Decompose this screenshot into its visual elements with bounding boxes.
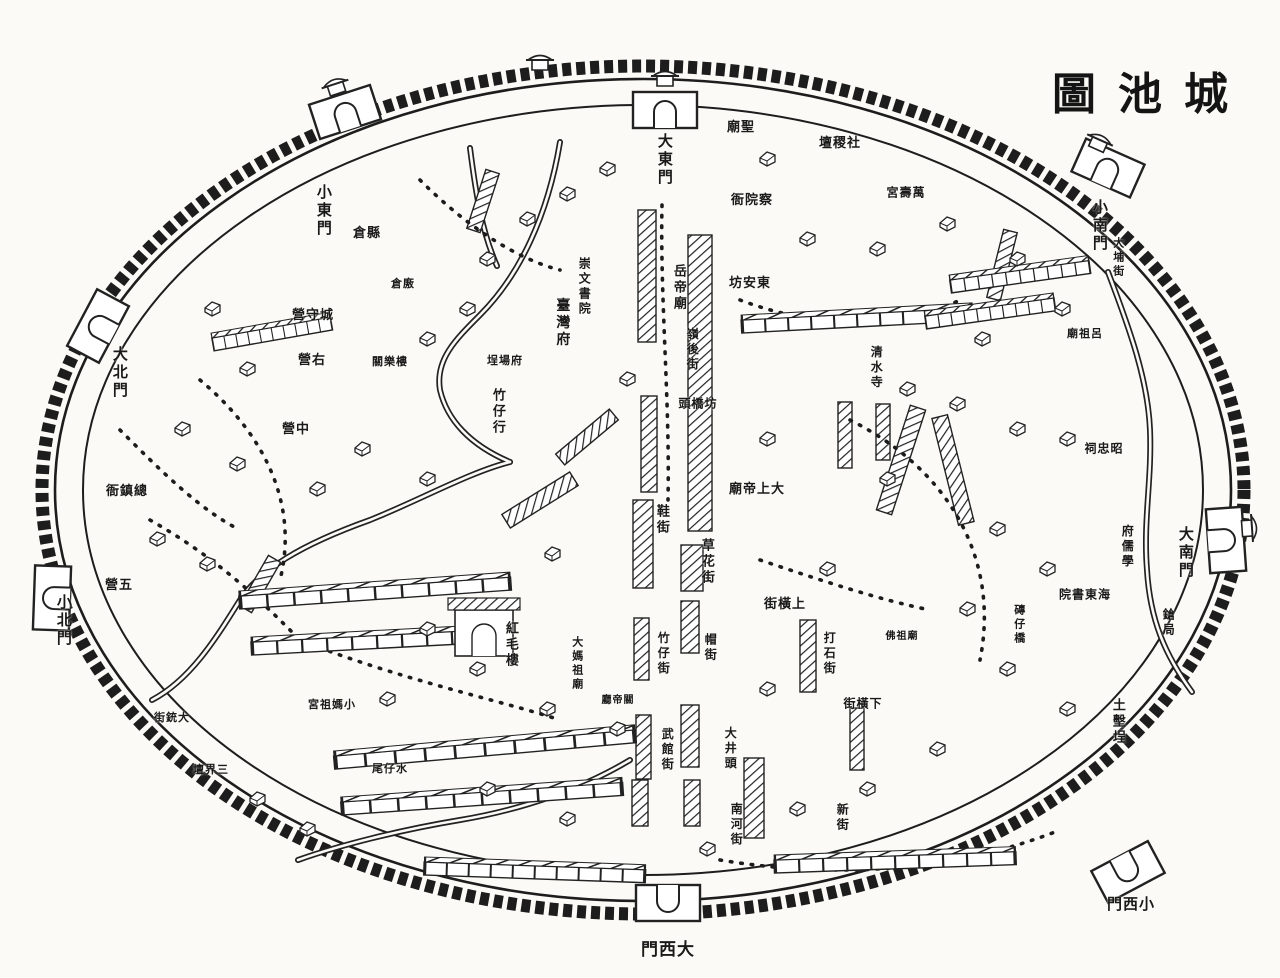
map-label: 大井頭 [724,727,737,772]
map-label: 磚仔橋 [1012,604,1024,646]
gate-label: 大南門 [1176,526,1192,580]
map-label: 帽街 [704,633,717,663]
gate-label: 門西小 [1107,898,1155,914]
map-label: 頭橋坊 [678,398,717,411]
gate-label: 小南門 [1090,199,1106,253]
map-label: 宮壽萬 [886,187,925,200]
map-label: 竹仔行 [491,388,505,436]
map-label: 廟祖呂 [1067,329,1103,341]
map-label: 大媽祖廟 [570,636,582,692]
map-label: 衙院察 [731,193,773,207]
map-label: 衙鎮總 [106,484,148,498]
map-label: 府儒學 [1121,525,1134,570]
map-label: 嶺後街 [686,328,699,373]
map-label: 岳帝廟 [672,264,686,312]
map-label: 倉縣 [353,226,381,240]
map-label: 打石街 [823,632,836,677]
map-label: 土墼埕 [1111,698,1125,746]
map-label: 宮祖媽小 [308,700,356,712]
map-label: 街橫上 [764,597,806,611]
map-label: 院書東海 [1059,589,1111,602]
map-label: 壇界三 [193,765,229,777]
map-title: 圖池城 [1052,58,1252,122]
map-label: 廟帝上大 [729,482,785,496]
map-label: 壇稷社 [819,136,861,150]
map-label: 坊安東 [729,276,771,290]
map-label: 廳帝關 [602,696,635,707]
gate-label: 大北門 [110,346,126,400]
map-label: 南河街 [730,803,743,848]
map-label: 紅毛樓 [504,621,518,669]
map-label: 關樂樓 [372,357,408,369]
map-label: 崇文書院 [578,257,591,317]
map-drawing [0,0,1280,978]
map-label: 街銃大 [154,713,190,725]
houses [150,152,1075,856]
map-label: 草花街 [700,538,714,586]
map-label: 大埔街 [1111,237,1123,279]
map-label: 竹仔街 [657,632,670,677]
map-label: 佛祖廟 [886,632,919,643]
map-label: 營守城 [292,308,334,322]
map-label: 鎗局 [1162,608,1175,638]
map-label: 營右 [298,353,326,367]
map-label: 臺灣府 [554,298,569,349]
map-label: 倉廒 [391,279,415,291]
map-label: 埕場府 [487,356,523,368]
gate-label: 小北門 [54,594,70,648]
gate-label: 門西大 [641,941,695,959]
map-label: 清水寺 [870,346,883,391]
map-label: 尾仔水 [372,764,408,776]
map-label: 武館街 [661,728,674,773]
map-label: 祠忠昭 [1084,443,1123,456]
map-label: 營中 [282,422,310,436]
map-label: 廟聖 [727,120,755,134]
map-label: 街橫下 [843,698,882,711]
map-label: 新街 [836,803,849,833]
map-label: 鞋街 [655,504,669,536]
gate-label: 小東門 [314,184,330,238]
gate-label: 大東門 [655,133,671,187]
map-canvas: 圖池城 營守城營右營中衙鎮總營五倉縣倉廒關樂樓臺灣府崇文書院埕場府竹仔行岳帝廟嶺… [0,0,1280,978]
map-label: 營五 [105,578,133,592]
